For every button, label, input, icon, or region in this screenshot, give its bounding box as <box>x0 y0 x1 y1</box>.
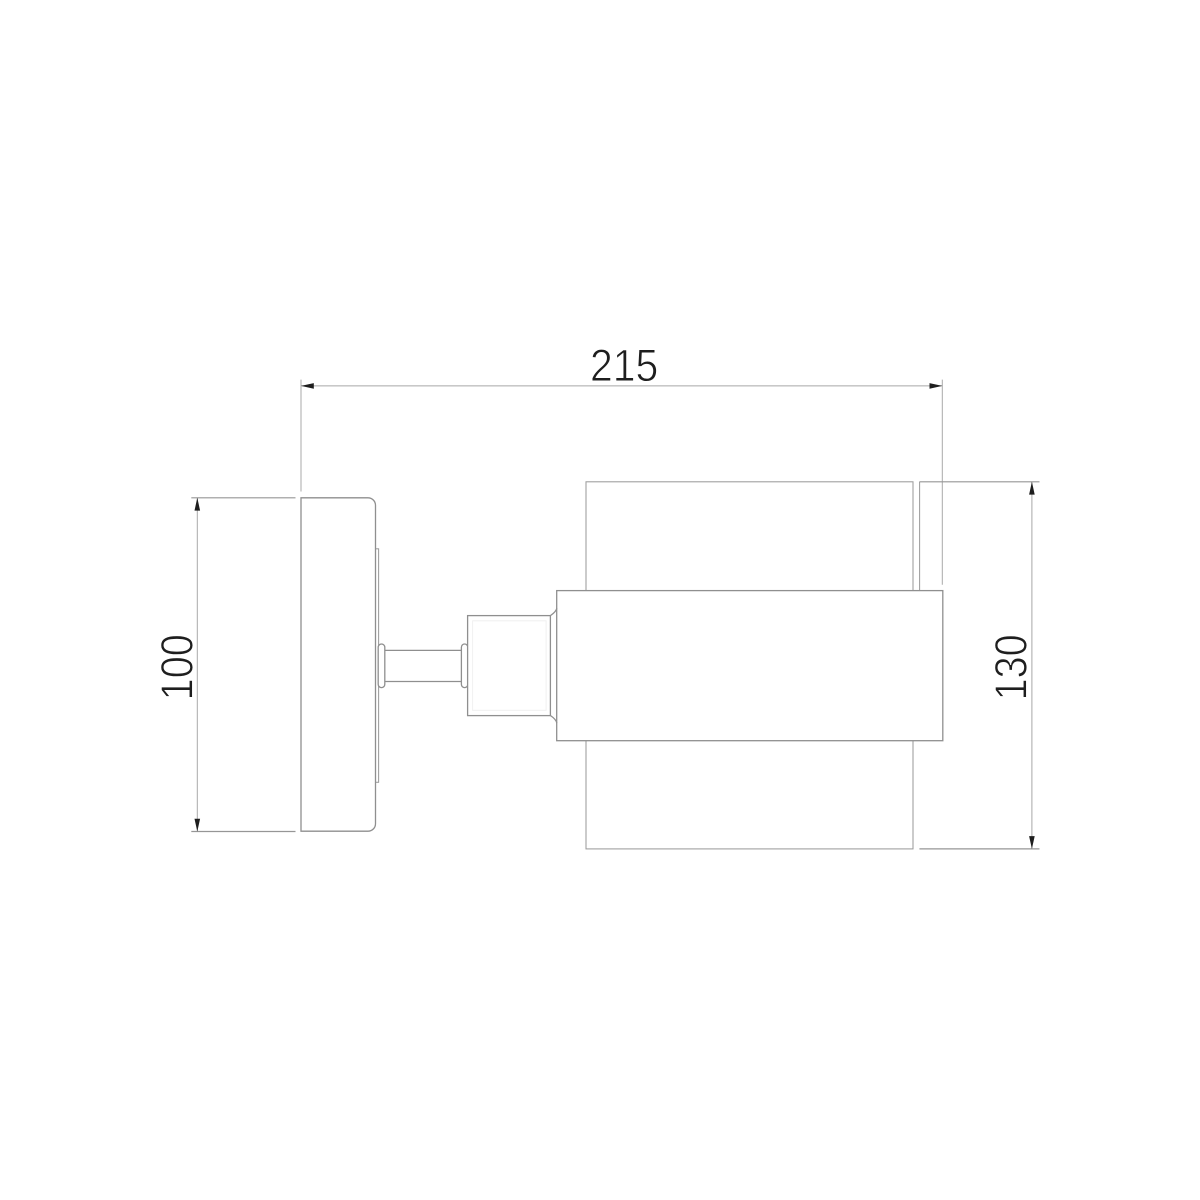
svg-text:130: 130 <box>986 634 1036 700</box>
svg-text:215: 215 <box>590 341 658 391</box>
svg-text:100: 100 <box>152 634 202 700</box>
